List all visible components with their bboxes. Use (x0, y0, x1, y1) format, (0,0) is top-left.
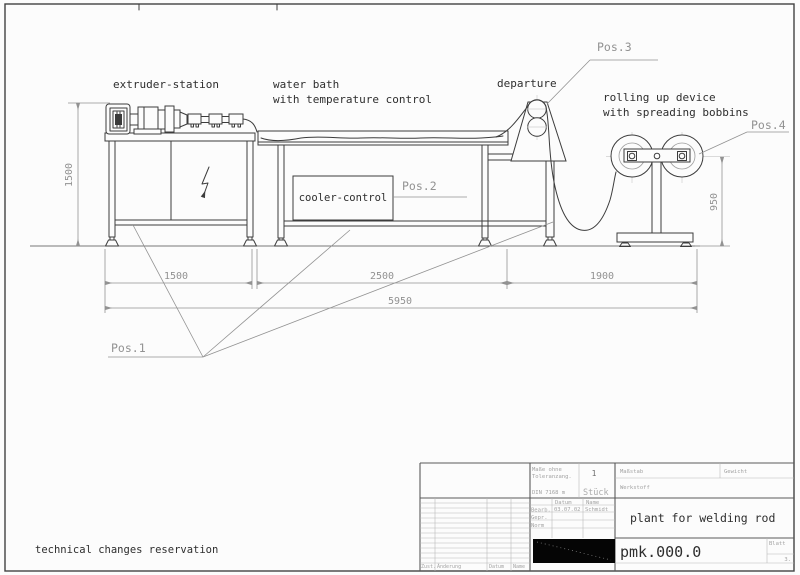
extruder-cabinet (115, 141, 247, 220)
drawing-number: pmk.000.0 (620, 543, 701, 561)
tolerance-norm: DIN 7168 m (532, 490, 566, 496)
extruder-leg-right (247, 141, 253, 237)
rev-col-state: Zust. (421, 564, 436, 570)
created-date: 03.07.02 (554, 507, 581, 513)
departure-bracket (488, 154, 514, 160)
fan-grille (115, 114, 122, 125)
departure-stand (511, 95, 566, 237)
sheet-label: Blatt (769, 541, 786, 547)
rollup-post (652, 162, 661, 233)
label-rollup-2: with spreading bobbins (603, 106, 749, 119)
tolerance-note-1: Maße ohne (532, 467, 562, 473)
heater-band (209, 114, 222, 124)
quantity-unit: Stück (583, 488, 609, 498)
pos3-label: Pos.3 (597, 40, 632, 54)
nozzle-cone (180, 112, 187, 127)
label-water-bath: water bath (273, 78, 339, 91)
drawing-sheet: cooler-control (0, 0, 800, 575)
extruder-rail (115, 220, 247, 225)
rev-col-name: Name (513, 564, 525, 570)
flange-ring (158, 110, 165, 129)
revision-table: Zust. Änderung Datum Name (420, 498, 530, 571)
label-rollup: rolling up device (603, 91, 716, 104)
sheet-value: 3. (784, 557, 791, 563)
dim-rollup-height: 950 (709, 193, 720, 211)
rev-col-date: Datum (489, 564, 504, 570)
flange-ring (165, 106, 174, 132)
title-block: Zust. Änderung Datum Name Maße ohne Tole… (420, 463, 794, 571)
drawing-title: plant for welding rod (630, 511, 775, 525)
rev-col-change: Änderung (437, 563, 461, 570)
pos1-label: Pos.1 (111, 341, 146, 355)
extruder-leg-left (109, 141, 115, 237)
extruder-station (105, 104, 257, 237)
sig-col-date: Datum (555, 500, 572, 506)
high-voltage-icon (202, 167, 209, 197)
pos4-label: Pos.4 (751, 118, 786, 132)
sig-col-name: Name (586, 500, 599, 506)
water-bath-leg-right (482, 145, 488, 238)
company-logo (533, 539, 615, 563)
gearbox (138, 107, 158, 131)
sig-row-created: Bearb. (531, 508, 551, 514)
dim-rollup-width: 1900 (590, 271, 614, 282)
heater-band (229, 114, 243, 124)
sig-row-checked: Gepr. (531, 515, 548, 521)
technical-drawing: cooler-control (0, 0, 800, 575)
weight-label: Gewicht (724, 469, 747, 475)
welding-rod-path (496, 100, 616, 230)
dim-extruder-width: 1500 (164, 271, 188, 282)
water-bath-leg-left (278, 145, 284, 238)
label-extruder-station: extruder-station (113, 78, 219, 91)
machine-feet (106, 237, 692, 247)
gearbox-foot (134, 129, 161, 134)
dim-station-height: 1500 (64, 163, 75, 187)
flange-ring (174, 110, 180, 128)
extruder-motor (106, 104, 257, 134)
scale-label: Maßstab (620, 469, 643, 475)
cooler-control-label: cooler-control (299, 192, 388, 204)
dim-water-bath-width: 2500 (370, 271, 394, 282)
quantity-value: 1 (592, 469, 597, 478)
heater-band (188, 114, 201, 124)
label-water-bath-2: with temperature control (273, 93, 432, 106)
dim-total-width: 5950 (388, 296, 412, 307)
rollup-base (617, 233, 693, 242)
created-name: Schmidt (585, 507, 608, 513)
sig-row-norm: Norm (531, 523, 545, 529)
footnote: technical changes reservation (35, 544, 218, 556)
water-bath-rail (284, 221, 546, 226)
rod-from-extruder (243, 119, 257, 132)
pos2-label: Pos.2 (402, 179, 437, 193)
material-label: Werkstoff (620, 485, 650, 491)
tolerance-note-2: Toleranzang. (532, 474, 572, 480)
label-departure: departure (497, 77, 557, 90)
signature-rows: Datum Name Bearb. 03.07.02 Schmidt Gepr.… (530, 498, 615, 538)
motor-shaft (130, 114, 138, 125)
